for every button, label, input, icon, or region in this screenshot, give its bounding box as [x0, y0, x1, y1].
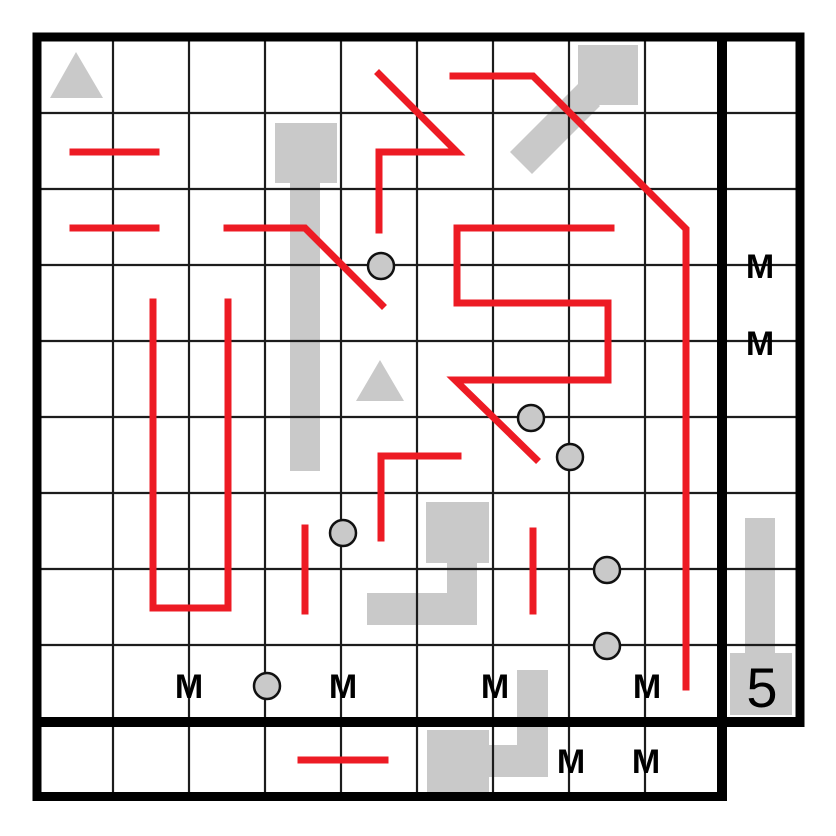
circle-marker	[594, 557, 620, 583]
m-clue: M	[557, 743, 585, 781]
circle-marker	[518, 405, 544, 431]
count-clue: 5	[746, 656, 777, 719]
m-clue: M	[746, 248, 774, 286]
circle-marker	[368, 253, 394, 279]
circle-marker	[330, 520, 356, 546]
m-clue: M	[329, 668, 357, 706]
m-clue: M	[746, 325, 774, 363]
m-clue: M	[633, 668, 661, 706]
m-clue: M	[175, 668, 203, 706]
puzzle-page: MMMMMMMM5	[0, 0, 836, 836]
m-clue: M	[632, 743, 660, 781]
circle-marker	[557, 444, 583, 470]
m-clue: M	[481, 668, 509, 706]
puzzle-board[interactable]: MMMMMMMM5	[0, 0, 836, 836]
circle-marker	[254, 673, 280, 699]
circle-marker	[594, 633, 620, 659]
